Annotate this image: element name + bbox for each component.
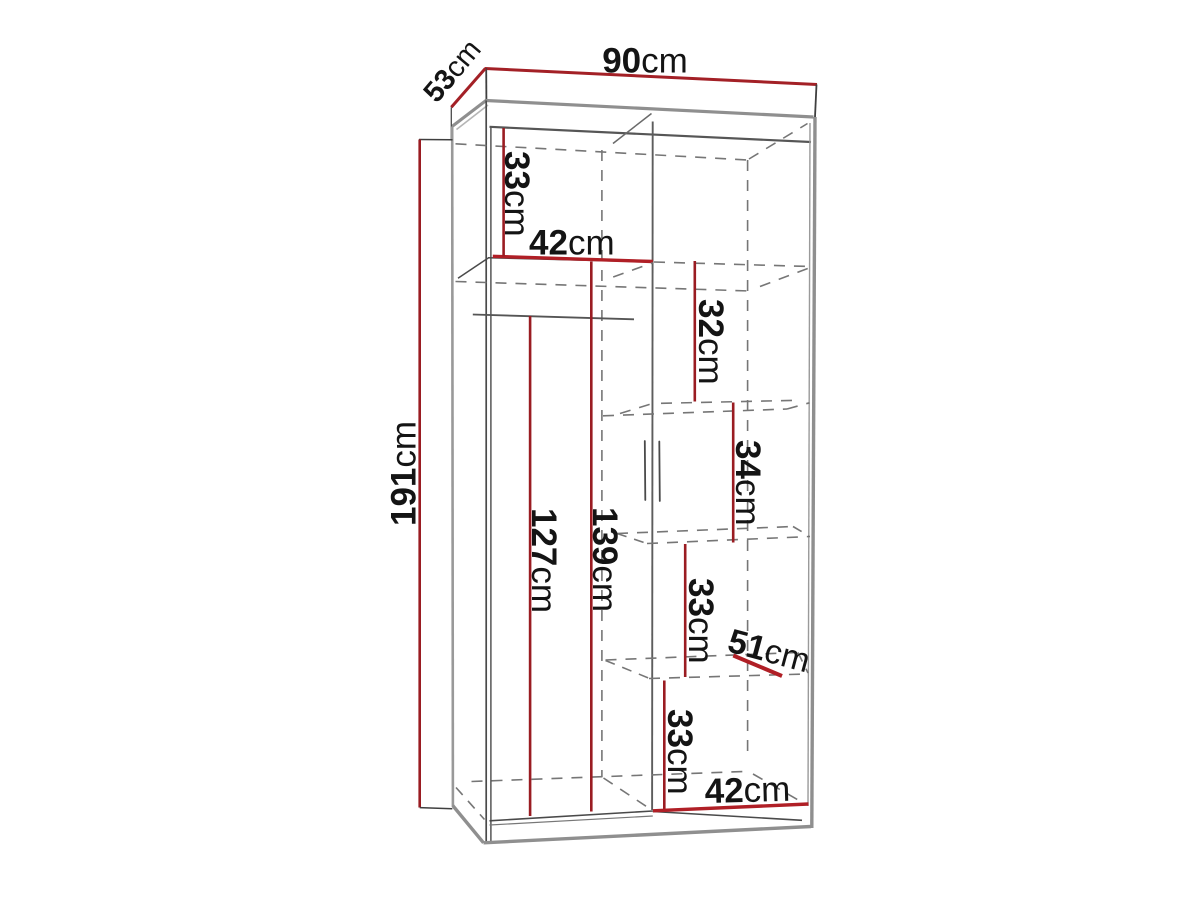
svg-text:127cm: 127cm (524, 508, 563, 613)
svg-text:34cm: 34cm (728, 440, 767, 526)
svg-text:32cm: 32cm (691, 299, 730, 385)
svg-text:191cm: 191cm (385, 421, 424, 526)
svg-text:139cm: 139cm (585, 507, 624, 612)
svg-text:90cm: 90cm (602, 42, 688, 81)
svg-text:53cm: 53cm (418, 34, 488, 109)
svg-text:33cm: 33cm (660, 709, 699, 795)
svg-text:42cm: 42cm (529, 224, 615, 263)
svg-text:42cm: 42cm (704, 770, 791, 811)
svg-text:33cm: 33cm (681, 578, 720, 664)
